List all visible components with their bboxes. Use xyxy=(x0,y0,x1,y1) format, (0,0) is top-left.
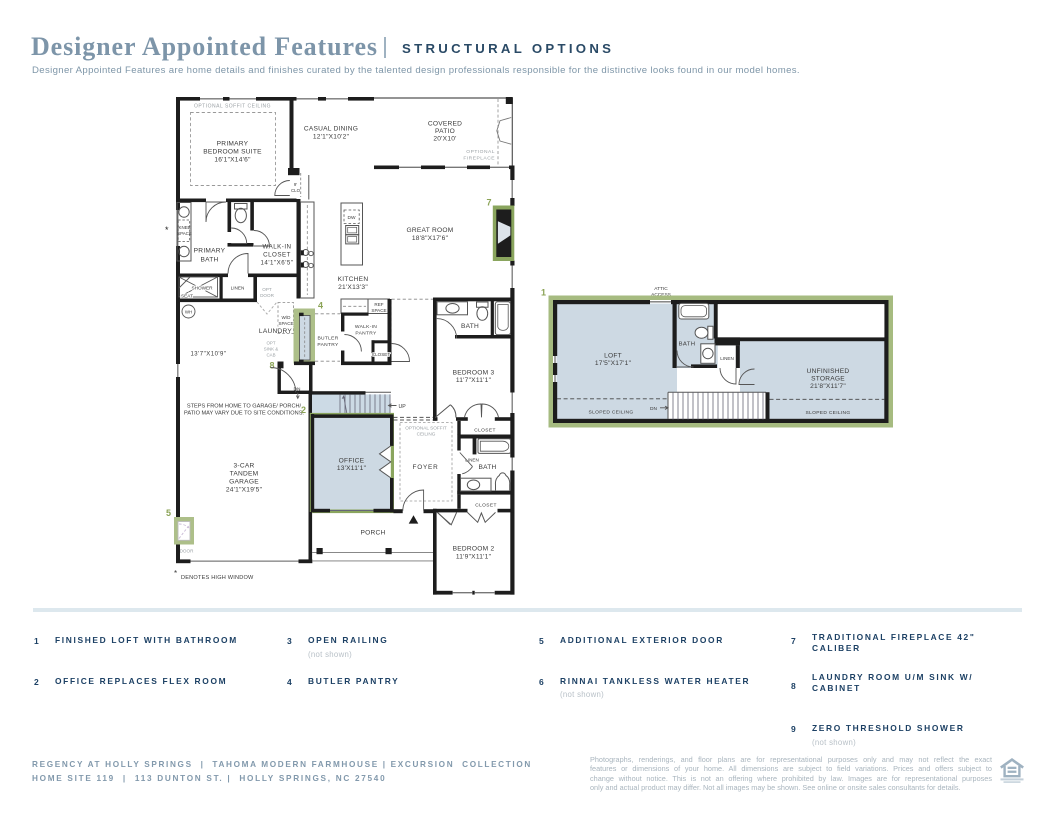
svg-text:STORAGE: STORAGE xyxy=(811,376,845,383)
svg-text:SLOPED CEILING: SLOPED CEILING xyxy=(589,410,634,416)
svg-text:BEDROOM 2: BEDROOM 2 xyxy=(453,546,495,553)
svg-text:7: 7 xyxy=(487,198,492,208)
svg-text:BEDROOM 3: BEDROOM 3 xyxy=(453,370,495,377)
svg-text:LINEN: LINEN xyxy=(465,458,479,463)
svg-text:20'X10': 20'X10' xyxy=(433,135,456,142)
svg-text:ATTIC: ATTIC xyxy=(654,286,668,292)
svg-text:WALK-IN: WALK-IN xyxy=(262,244,291,251)
svg-text:LINEN: LINEN xyxy=(231,286,245,291)
svg-text:KNEE: KNEE xyxy=(179,225,191,230)
svg-text:SPACE: SPACE xyxy=(371,308,386,313)
svg-text:CLOSET: CLOSET xyxy=(372,352,391,357)
svg-text:SLOPED CEILING: SLOPED CEILING xyxy=(806,410,851,416)
svg-text:CLO: CLO xyxy=(291,188,301,193)
svg-text:LAUNDRY: LAUNDRY xyxy=(259,328,292,335)
svg-text:BATH: BATH xyxy=(200,256,218,263)
svg-text:5: 5 xyxy=(166,508,171,518)
svg-text:WALK-IN: WALK-IN xyxy=(355,324,377,330)
svg-text:DW: DW xyxy=(348,215,356,221)
svg-text:BEDROOM SUITE: BEDROOM SUITE xyxy=(203,148,262,155)
svg-text:CLOSET: CLOSET xyxy=(475,503,497,509)
svg-text:13'X11'1": 13'X11'1" xyxy=(337,465,367,472)
svg-text:11'7"X11'1": 11'7"X11'1" xyxy=(456,377,492,384)
svg-text:UP: UP xyxy=(399,404,407,410)
svg-text:13'7"X10'9": 13'7"X10'9" xyxy=(190,352,226,358)
svg-text:OPT: OPT xyxy=(262,287,272,292)
svg-text:CLOSET: CLOSET xyxy=(263,252,291,259)
svg-text:PRIMARY: PRIMARY xyxy=(217,140,249,147)
svg-text:CEILING: CEILING xyxy=(417,432,436,437)
svg-text:W/D: W/D xyxy=(282,315,292,320)
svg-text:BATH: BATH xyxy=(478,464,496,471)
svg-text:GARAGE: GARAGE xyxy=(229,479,259,486)
svg-text:FIREPLACE: FIREPLACE xyxy=(463,156,495,162)
svg-text:DN: DN xyxy=(650,406,657,412)
svg-text:FOYER: FOYER xyxy=(412,464,438,471)
svg-text:PATIO: PATIO xyxy=(435,128,455,135)
svg-text:1: 1 xyxy=(541,288,546,298)
svg-text:GREAT ROOM: GREAT ROOM xyxy=(407,227,454,234)
svg-text:CLOSET: CLOSET xyxy=(474,428,496,434)
svg-text:KITCHEN: KITCHEN xyxy=(338,276,369,283)
svg-text:UNFINISHED: UNFINISHED xyxy=(807,368,850,375)
svg-text:SPACE: SPACE xyxy=(278,321,293,326)
svg-text:4: 4 xyxy=(318,301,323,311)
svg-text:21'X13'3": 21'X13'3" xyxy=(338,284,368,291)
svg-text:DOOR: DOOR xyxy=(180,549,194,554)
svg-text:LINEN: LINEN xyxy=(720,356,734,361)
svg-text:17'5"X17'1": 17'5"X17'1" xyxy=(595,360,632,367)
svg-text:OPTIONAL SOFFIT CEILING: OPTIONAL SOFFIT CEILING xyxy=(194,104,271,110)
svg-text:WH: WH xyxy=(185,310,192,315)
svg-text:21'8"X11'7": 21'8"X11'7" xyxy=(810,383,846,390)
svg-text:24'1"X19'5": 24'1"X19'5" xyxy=(226,487,263,494)
svg-text:LOFT: LOFT xyxy=(604,353,622,360)
svg-text:PATIO MAY VARY DUE TO SITE CON: PATIO MAY VARY DUE TO SITE CONDITIONS. xyxy=(184,410,304,416)
svg-text:*: * xyxy=(165,225,169,235)
svg-text:OPT: OPT xyxy=(266,341,275,346)
svg-text:14'1"X6'5": 14'1"X6'5" xyxy=(260,260,293,267)
svg-text:2: 2 xyxy=(301,405,306,415)
svg-text:DOOR: DOOR xyxy=(260,293,274,298)
svg-text:CAB: CAB xyxy=(266,353,275,358)
svg-text:11'9"X11'1": 11'9"X11'1" xyxy=(456,553,492,560)
svg-text:16'1"X14'6": 16'1"X14'6" xyxy=(214,156,251,163)
svg-text:8: 8 xyxy=(270,361,275,371)
svg-text:STEPS FROM HOME TO GARAGE/ POR: STEPS FROM HOME TO GARAGE/ PORCH/ xyxy=(187,404,302,410)
svg-text:3-CAR: 3-CAR xyxy=(233,463,254,470)
svg-text:COVERED: COVERED xyxy=(428,120,462,127)
svg-text:REF: REF xyxy=(374,302,383,307)
svg-text:DN: DN xyxy=(294,387,301,393)
svg-text:CASUAL DINING: CASUAL DINING xyxy=(304,125,358,132)
svg-text:SHOWER: SHOWER xyxy=(191,286,213,291)
svg-text:PANTRY: PANTRY xyxy=(355,331,377,337)
svg-text:PANTRY: PANTRY xyxy=(317,342,339,348)
svg-text:OPTIONAL SOFFIT: OPTIONAL SOFFIT xyxy=(405,426,447,431)
svg-text:BATH: BATH xyxy=(461,323,479,330)
svg-text:9': 9' xyxy=(294,182,297,187)
svg-text:SINK &: SINK & xyxy=(264,347,278,352)
svg-text:SEAT: SEAT xyxy=(181,294,193,299)
svg-text:PRIMARY: PRIMARY xyxy=(194,247,226,254)
svg-text:12'1"X10'2": 12'1"X10'2" xyxy=(313,133,350,140)
svg-text:BUTLER: BUTLER xyxy=(317,336,338,342)
svg-text:BATH: BATH xyxy=(679,342,696,348)
svg-text:*: * xyxy=(174,569,177,578)
svg-text:18'8"X17'6": 18'8"X17'6" xyxy=(412,235,449,242)
svg-text:TANDEM: TANDEM xyxy=(230,471,259,478)
svg-text:OPTIONAL: OPTIONAL xyxy=(466,149,495,155)
svg-text:DENOTES HIGH WINDOW: DENOTES HIGH WINDOW xyxy=(181,575,254,581)
svg-text:SPACE: SPACE xyxy=(177,231,192,236)
svg-text:OFFICE: OFFICE xyxy=(339,458,365,465)
svg-text:PORCH: PORCH xyxy=(360,530,385,537)
